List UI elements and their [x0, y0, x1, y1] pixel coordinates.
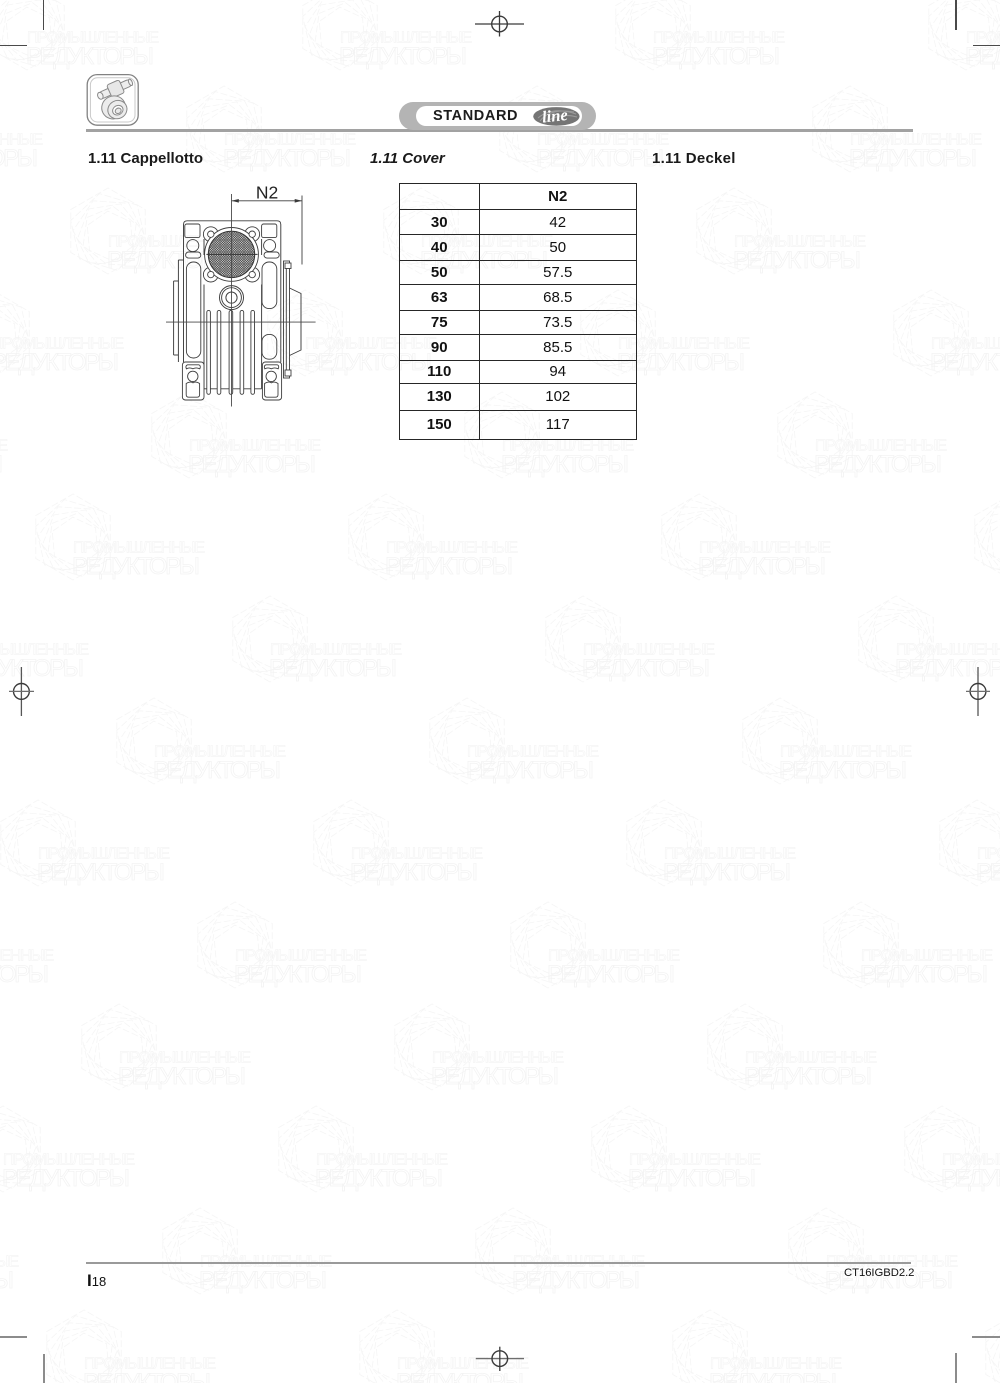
svg-text:N2: N2: [256, 183, 278, 203]
svg-text:line: line: [541, 105, 569, 127]
